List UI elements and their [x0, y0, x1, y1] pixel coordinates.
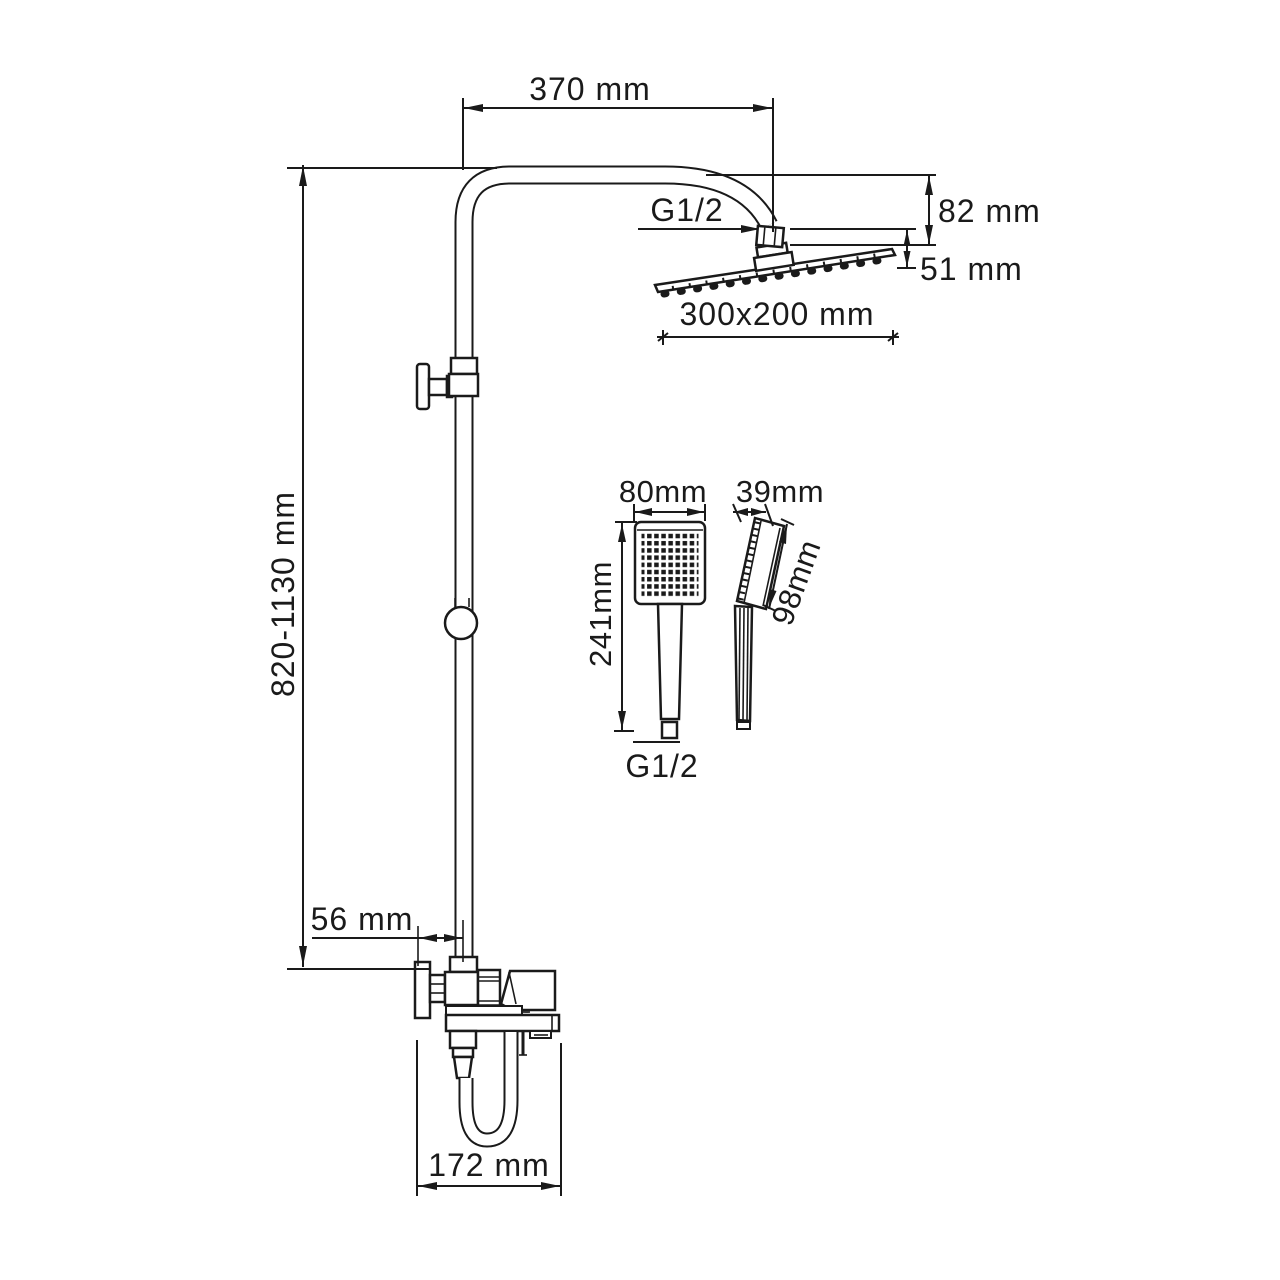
background — [0, 0, 1280, 1280]
cartridge — [478, 970, 500, 1008]
diverter-knob — [417, 364, 429, 409]
hose-outlet-ring — [453, 1048, 473, 1057]
mixer-body — [445, 972, 478, 1005]
dim-label-g12-bottom: G1/2 — [625, 748, 698, 784]
diverter-stem — [429, 379, 447, 395]
joint-lower-body — [449, 374, 478, 396]
dim-label-370: 370 mm — [529, 71, 651, 107]
dim-label-56: 56 mm — [311, 901, 414, 937]
dim-label-241: 241mm — [583, 561, 618, 667]
mixer-handle — [501, 971, 555, 1010]
handle-rib — [743, 608, 744, 720]
handshower-handle-front — [658, 604, 682, 719]
hose-outlet — [450, 1031, 476, 1048]
connector-nut — [756, 226, 784, 247]
dim-label-39: 39mm — [736, 474, 824, 509]
handle-rib — [747, 608, 748, 720]
technical-drawing-page: 370 mm G1/2 82 mm 51 mm 300x200 mm 820-1… — [0, 0, 1280, 1280]
dim-label-172: 172 mm — [428, 1147, 550, 1183]
tub-spout — [446, 1015, 559, 1031]
dim-label-51: 51 mm — [920, 251, 1023, 287]
dim-label-820-1130: 820-1130 mm — [265, 491, 301, 697]
hose-connector-cone — [454, 1057, 472, 1078]
body-base-plate — [446, 1006, 522, 1015]
dim-label-g12-top: G1/2 — [650, 192, 723, 228]
dim-label-82: 82 mm — [938, 193, 1041, 229]
wall-connector — [430, 975, 445, 1002]
spray-face-dot-grid — [642, 533, 699, 598]
dim-label-80: 80mm — [619, 474, 707, 509]
slider-knob — [445, 607, 477, 639]
arm-connector — [756, 226, 784, 247]
shower-system-drawing: 370 mm G1/2 82 mm 51 mm 300x200 mm 820-1… — [0, 0, 1280, 1280]
handle-thread-stub — [662, 722, 677, 738]
joint-upper-nut — [451, 358, 477, 374]
side-handle-cap — [737, 722, 750, 729]
handle-rib — [739, 608, 740, 719]
dim-label-300x200: 300x200 mm — [680, 296, 875, 332]
dim-rain-head-size: 300x200 mm — [657, 296, 899, 345]
wall-flange — [415, 962, 430, 1018]
